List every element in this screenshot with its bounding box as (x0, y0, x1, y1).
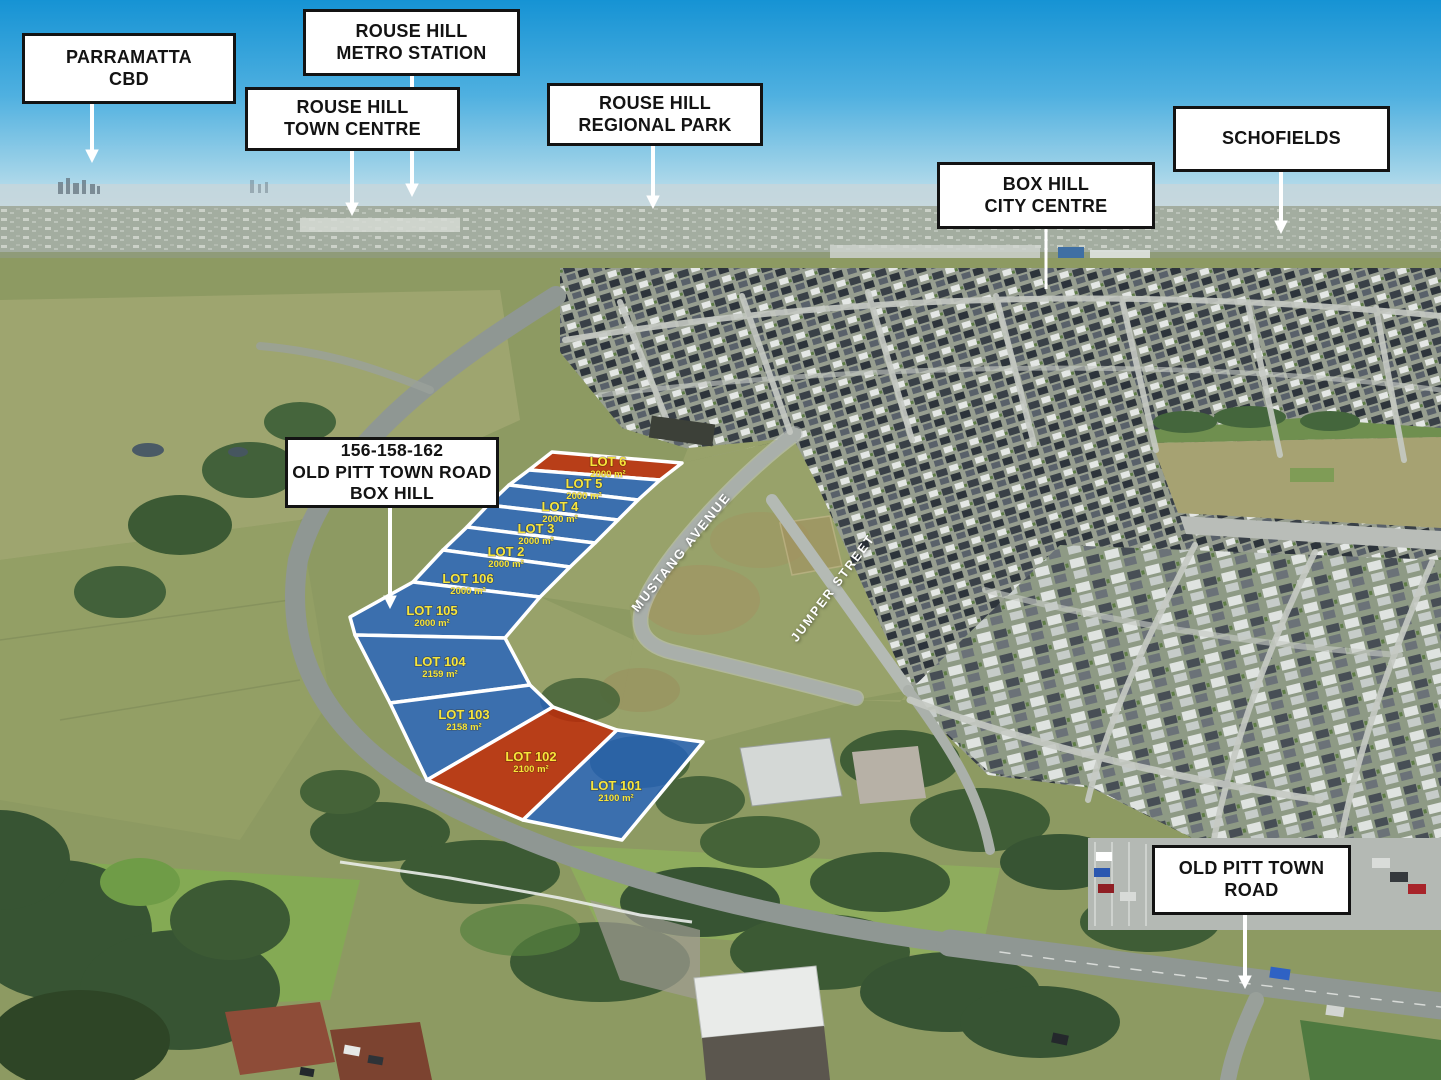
label-line: OLD PITT TOWN ROAD (292, 462, 492, 483)
terracotta-house (225, 1002, 335, 1075)
label-line: OLD PITT TOWN (1179, 858, 1325, 880)
label-parramatta-cbd: PARRAMATTA CBD (22, 33, 236, 104)
lot-104-area: 2159 m² (422, 669, 457, 680)
lot-103-label: LOT 103 (438, 707, 489, 722)
label-line: 156-158-162 (341, 440, 444, 461)
pond (132, 443, 164, 457)
label-rouse-hill-metro-station: ROUSE HILL METRO STATION (303, 9, 520, 76)
label-line: PARRAMATTA (66, 47, 192, 69)
label-line: ROUSE HILL (355, 21, 467, 43)
label-schofields: SCHOFIELDS (1173, 106, 1390, 172)
lot-105-label: LOT 105 (406, 603, 457, 618)
label-line: ROUSE HILL (296, 97, 408, 119)
white-roof-building (694, 966, 824, 1038)
label-box-hill-city-centre: BOX HILL CITY CENTRE (937, 162, 1155, 229)
lot-2-area: 2000 m² (488, 559, 523, 570)
label-property-address: 156-158-162 OLD PITT TOWN ROAD BOX HILL (285, 437, 499, 508)
label-rouse-hill-town-centre: ROUSE HILL TOWN CENTRE (245, 87, 460, 151)
lot-102-area: 2100 m² (513, 764, 548, 775)
lot-104-label: LOT 104 (414, 654, 466, 669)
lot-106-area: 2000 m² (450, 586, 485, 597)
label-line: TOWN CENTRE (284, 119, 421, 141)
label-line: REGIONAL PARK (578, 115, 731, 137)
lot-2-label: LOT 2 (488, 544, 525, 559)
lot-5-label: LOT 5 (566, 476, 603, 491)
lot-101-area: 2100 m² (598, 793, 633, 804)
lot-4-label: LOT 4 (542, 499, 580, 514)
label-line: BOX HILL (1003, 174, 1089, 196)
label-line: ROUSE HILL (599, 93, 711, 115)
lot-105-area: 2000 m² (414, 618, 449, 629)
label-rouse-hill-regional-park: ROUSE HILL REGIONAL PARK (547, 83, 763, 146)
grey-shed (740, 738, 842, 806)
lot-106-label: LOT 106 (442, 571, 493, 586)
label-line: BOX HILL (350, 483, 434, 504)
lot-3-label: LOT 3 (518, 521, 555, 536)
lot-103-area: 2158 m² (446, 722, 481, 733)
lot-102-label: LOT 102 (505, 749, 556, 764)
label-line: CBD (109, 69, 149, 91)
label-line: SCHOFIELDS (1222, 128, 1341, 150)
aerial-site-map: LOT 6 2000 m² LOT 5 2000 m² LOT 4 2000 m… (0, 0, 1441, 1080)
lot-6-label: LOT 6 (590, 454, 627, 469)
label-line: ROAD (1224, 880, 1278, 902)
label-line: CITY CENTRE (985, 196, 1108, 218)
lot-101-label: LOT 101 (590, 778, 641, 793)
label-line: METRO STATION (336, 43, 486, 65)
label-old-pitt-town-road: OLD PITT TOWN ROAD (1152, 845, 1351, 915)
